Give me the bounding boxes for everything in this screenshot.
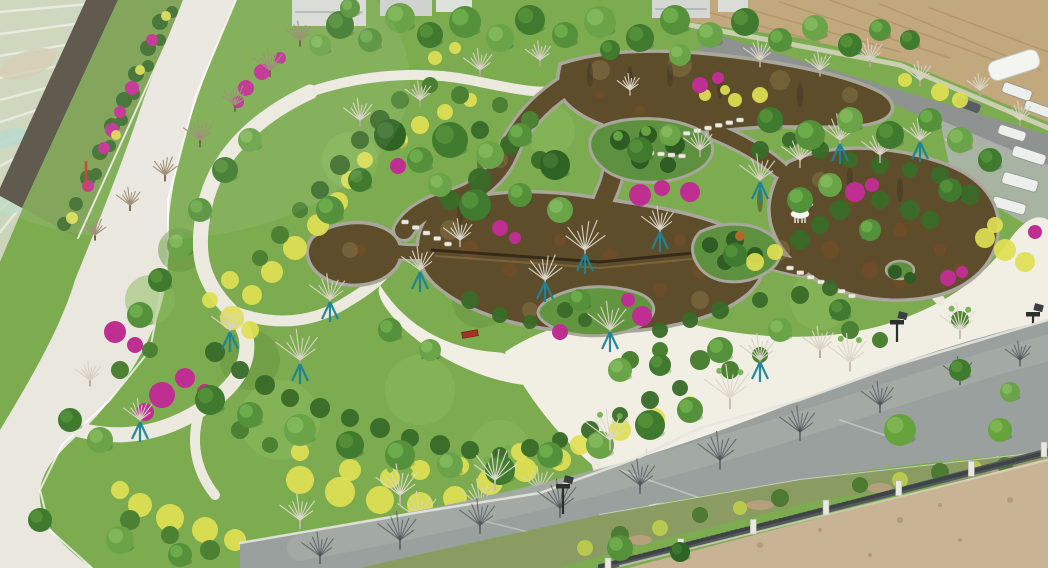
water-reflection (797, 83, 803, 107)
water-reflection (667, 63, 673, 87)
island-shrub-orange (735, 231, 745, 241)
park-aerial-photo (0, 0, 1048, 568)
water-reflection (897, 178, 903, 202)
strip-dirt (746, 500, 774, 510)
water-reflection (587, 63, 593, 87)
scene-canvas (0, 0, 1048, 568)
